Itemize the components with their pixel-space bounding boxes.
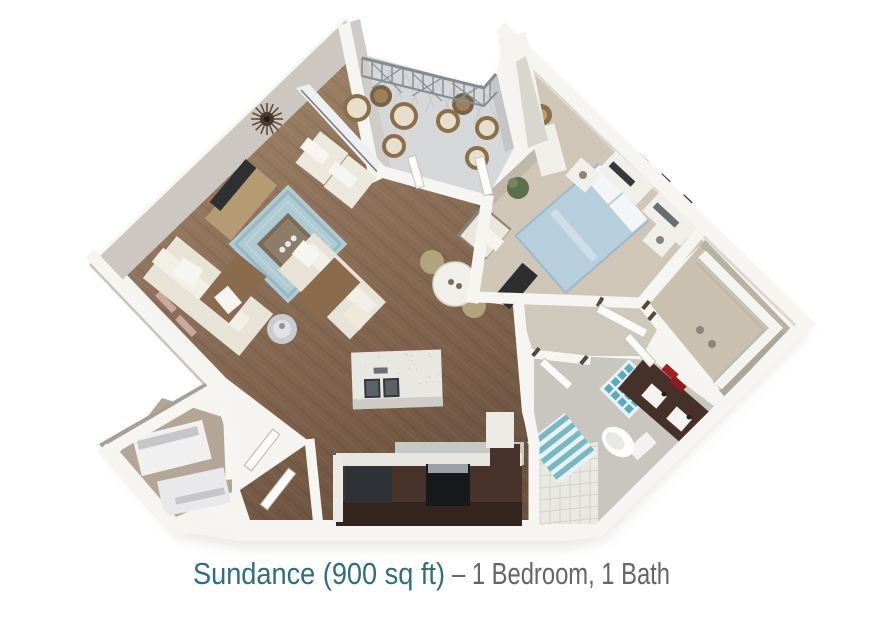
svg-text:– 1 Bedroom, 1 Bath: – 1 Bedroom, 1 Bath [452,556,670,591]
svg-text:Sundance (900 sq ft): Sundance (900 sq ft) [193,556,445,591]
